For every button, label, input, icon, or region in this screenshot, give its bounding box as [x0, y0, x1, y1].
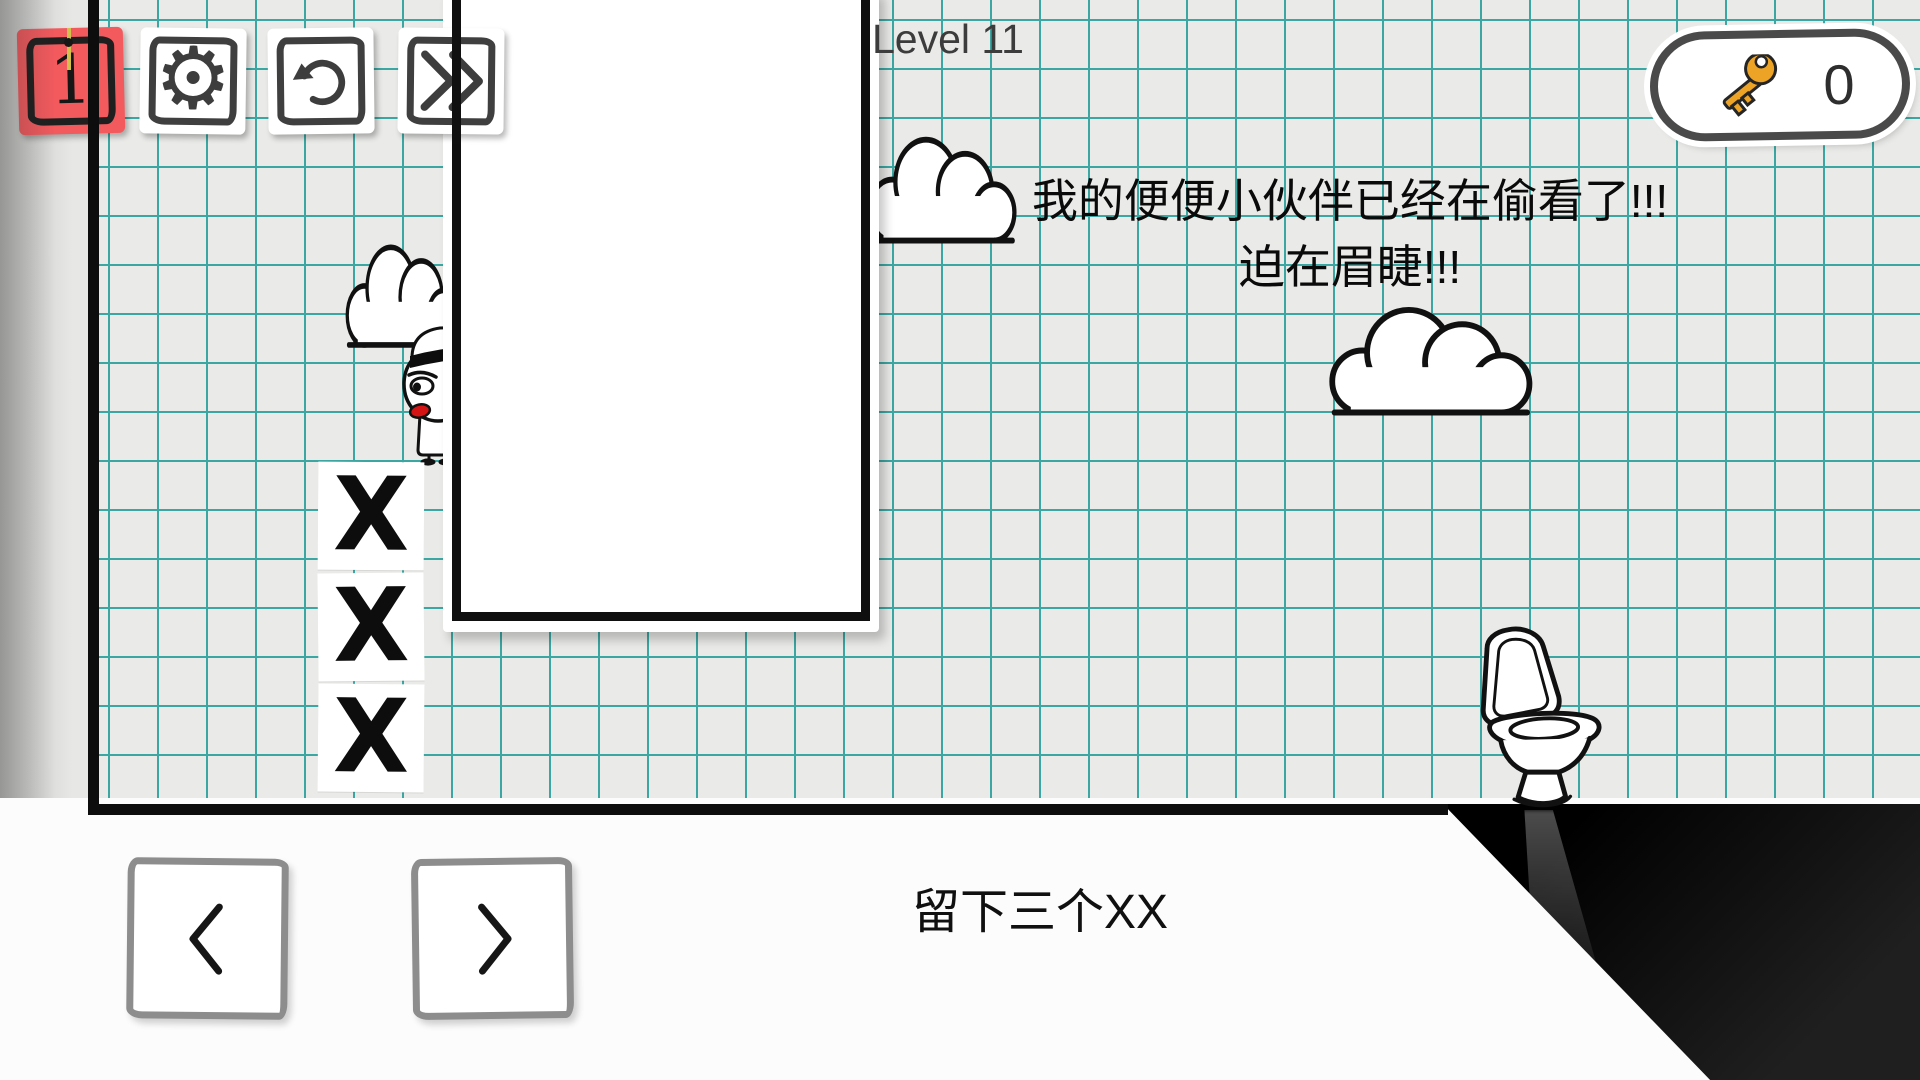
skip-level-button[interactable] — [397, 27, 504, 134]
door-panel-border — [452, 0, 870, 621]
speech-text: 我的便便小伙伴已经在偷看了!!! 迫在眉睫!!! — [930, 168, 1770, 300]
x-mark: X — [332, 687, 409, 789]
x-block[interactable]: X — [318, 684, 425, 793]
key-count: 0 — [1823, 51, 1855, 117]
chevron-left-icon — [176, 896, 239, 981]
toilet[interactable] — [1458, 618, 1613, 813]
stage-number-frame: 1 — [26, 36, 116, 126]
next-level-button[interactable] — [411, 857, 574, 1020]
restart-frame — [276, 36, 365, 125]
restart-button[interactable] — [267, 27, 374, 134]
settings-frame: ⚙ — [148, 36, 237, 125]
floor-line — [88, 804, 1448, 815]
left-wall — [88, 0, 99, 810]
door-border-overlap — [452, 20, 461, 144]
chevron-right-icon — [461, 896, 524, 981]
game-screen: X X X 1 ⚙ — [0, 0, 1920, 1080]
pin-dot — [64, 38, 73, 47]
settings-button[interactable]: ⚙ — [139, 27, 246, 134]
door-panel[interactable] — [443, 0, 879, 632]
prev-level-button[interactable] — [126, 857, 289, 1020]
gear-icon: ⚙ — [154, 35, 232, 122]
level-label: Level 11 — [872, 16, 1024, 63]
restart-icon — [284, 42, 359, 121]
key-counter[interactable]: 0 — [1649, 28, 1911, 143]
pin-string — [67, 28, 71, 70]
cloud-icon — [1316, 298, 1548, 422]
double-chevron-right-icon — [414, 46, 489, 117]
x-mark: X — [332, 576, 409, 678]
speech-line-1: 我的便便小伙伴已经在偷看了!!! — [930, 168, 1770, 234]
skip-frame — [407, 37, 496, 126]
light-beam — [1513, 810, 1608, 1060]
key-icon — [1705, 54, 1798, 118]
darkness-region — [1443, 804, 1920, 1080]
x-mark: X — [333, 465, 410, 567]
x-block[interactable]: X — [317, 572, 424, 681]
x-block[interactable]: X — [318, 462, 425, 571]
speech-line-2: 迫在眉睫!!! — [930, 234, 1770, 300]
hint-caption: 留下三个XX — [810, 872, 1270, 942]
